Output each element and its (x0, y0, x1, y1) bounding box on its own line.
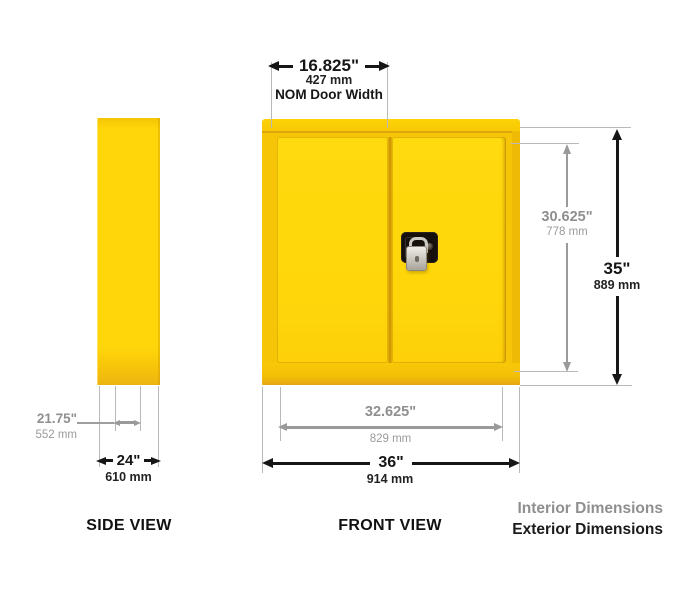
dim-interior-depth-inches: 21.75" (15, 412, 77, 427)
front-view-cabinet (262, 119, 520, 385)
legend-interior: Interior Dimensions (463, 498, 663, 519)
arrow-up-icon (612, 129, 622, 140)
arrow-down-icon (612, 374, 622, 385)
extension-line (520, 127, 631, 128)
dim-exterior-width-mm: 914 mm (312, 472, 468, 486)
arrow-left-icon (278, 423, 287, 431)
arrow-right-icon (134, 420, 141, 426)
dim-interior-depth-arrow (113, 418, 141, 427)
dim-interior-height-mm: 778 mm (541, 226, 592, 240)
arrow-up-icon (563, 144, 571, 154)
dim-interior-width-inches: 32.625" (365, 405, 416, 421)
cabinet-door-gap (388, 137, 392, 363)
arrow-down-icon (563, 362, 571, 372)
dim-interior-height-inches: 30.625" (541, 210, 592, 226)
dim-exterior-width-inches: 36" (370, 455, 411, 472)
legend-exterior: Exterior Dimensions (463, 519, 663, 540)
arrow-right-icon (494, 423, 503, 431)
cabinet-top-cap (262, 119, 520, 133)
side-view-panel (97, 118, 160, 385)
keyhole-icon (415, 256, 419, 262)
cabinet-left-door (277, 137, 388, 363)
cabinet-dimension-diagram: 21.75" 552 mm 24" 610 mm 16.825" (0, 0, 700, 590)
arrow-right-icon (151, 457, 161, 465)
arrow-left-icon (113, 420, 120, 426)
leader-line (77, 422, 114, 424)
legend: Interior Dimensions Exterior Dimensions (463, 498, 663, 540)
dim-exterior-height-inches: 35" (594, 260, 641, 278)
dim-exterior-width: 36" (262, 454, 520, 472)
dim-nom-door-width-mm: 427 mm (269, 73, 389, 87)
dim-interior-width: 32.625" 829 mm (278, 405, 503, 447)
dim-interior-width-mm: 829 mm (370, 433, 412, 447)
arrow-left-icon (268, 61, 279, 71)
arrow-right-icon (509, 458, 520, 468)
dim-interior-depth-mm: 552 mm (15, 429, 77, 443)
arrow-right-icon (379, 61, 390, 71)
dim-exterior-depth-mm: 610 mm (66, 470, 191, 484)
dim-exterior-height-mm: 889 mm (594, 278, 641, 292)
extension-line (520, 385, 632, 386)
dim-exterior-depth: 24" (96, 452, 161, 469)
arrow-left-icon (262, 458, 273, 468)
dim-exterior-depth-inches: 24" (113, 453, 145, 469)
side-view-label: SIDE VIEW (49, 517, 209, 535)
cabinet-right-edge (512, 131, 520, 385)
padlock-icon (406, 246, 427, 271)
dim-nom-door-width-caption: NOM Door Width (244, 87, 414, 102)
dim-nom-door-width: 16.825" (268, 58, 390, 74)
cabinet-base (262, 363, 520, 385)
arrow-left-icon (96, 457, 106, 465)
dim-exterior-height: 35" 889 mm (586, 129, 648, 385)
front-view-label: FRONT VIEW (310, 517, 470, 535)
